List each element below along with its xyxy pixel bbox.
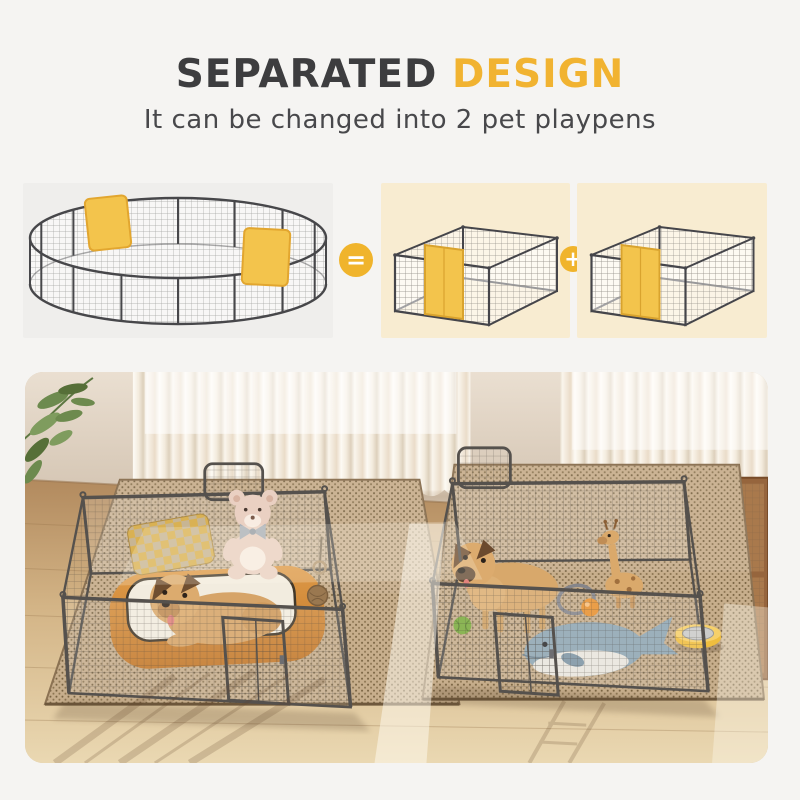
rect-playpen-illustration-a (381, 183, 570, 338)
rect-playpen-illustration-b (577, 183, 767, 338)
equals-symbol: = (346, 248, 366, 272)
pen-box-a (393, 225, 559, 325)
page-title-primary: SEPARATED (176, 52, 438, 97)
playpen-left (53, 464, 371, 731)
page-title: SEPARATED DESIGN (0, 52, 800, 97)
page-title-accent: DESIGN (452, 52, 624, 97)
split-playpen-card-a (381, 183, 570, 338)
pen-box-b (590, 225, 756, 325)
page-subtitle: It can be changed into 2 pet playpens (0, 105, 800, 135)
round-playpen-illustration (23, 183, 333, 338)
lifestyle-photo (25, 372, 768, 763)
full-playpen-card (23, 183, 333, 338)
equals-icon: = (339, 243, 373, 277)
room-scene (25, 372, 768, 763)
yellow-gate-front (242, 228, 291, 286)
split-playpen-card-b (577, 183, 767, 338)
yellow-gate-back (84, 195, 131, 251)
marketing-page: SEPARATED DESIGN It can be changed into … (0, 0, 800, 800)
